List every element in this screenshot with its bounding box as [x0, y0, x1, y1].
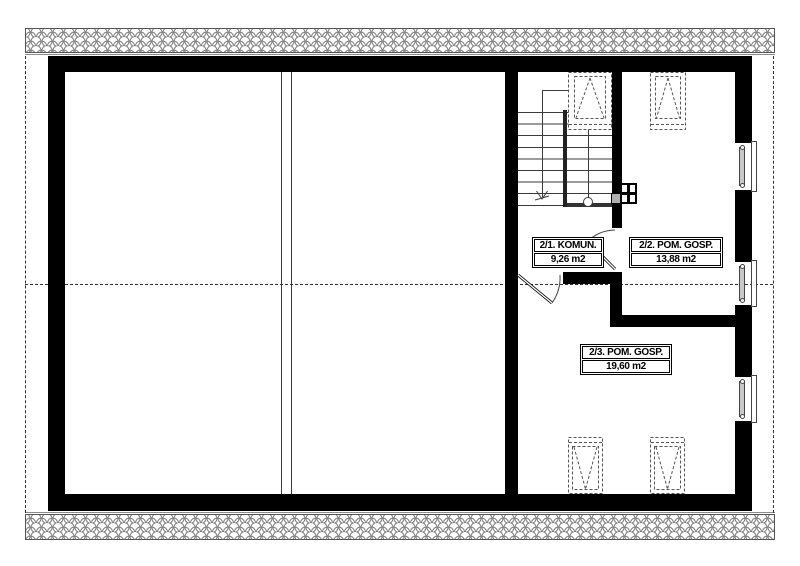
stair-walkline-up	[588, 90, 589, 198]
window-3-frame	[751, 375, 757, 423]
exterior-wall-top	[48, 56, 752, 72]
plan-vector-overlay	[0, 0, 800, 566]
chimney-vent-gray	[611, 193, 621, 204]
window-1-hinge-top	[740, 145, 745, 150]
interior-wall-room22-bottom	[610, 315, 735, 327]
window-2-frame	[751, 260, 757, 307]
window-3-hinge-bottom	[740, 414, 745, 419]
stair-stringer	[563, 110, 567, 207]
window-2-hinge-top	[740, 264, 745, 269]
roof-window-bottom-1	[569, 438, 603, 494]
floor-plan-sheet: 2/1. KOMUN. 9,26 m2 2/2. POM. GOSP. 13,8…	[0, 0, 800, 566]
room-area: 19,60 m2	[582, 360, 670, 373]
stair-landing-line	[542, 90, 613, 91]
interior-wall-main-vertical	[505, 72, 518, 494]
door-corridor-to-room23	[518, 275, 560, 303]
window-1-glazing	[739, 147, 745, 186]
exterior-wall-right-seg3	[735, 305, 752, 377]
room-area: 9,26 m2	[534, 253, 602, 266]
roof-hatch-band-top	[25, 28, 775, 53]
window-2-hinge-bottom	[740, 298, 745, 303]
stair-bottom-edge	[567, 203, 614, 207]
exterior-wall-right-seg1	[735, 56, 752, 143]
interior-wall-stair-right	[612, 72, 622, 228]
room-name: 2/1. KOMUN.	[534, 239, 602, 252]
window-1-hinge-bottom	[740, 183, 745, 188]
room-label-pom-gosp-22: 2/2. POM. GOSP. 13,88 m2	[629, 237, 723, 268]
exterior-wall-bottom	[48, 494, 752, 511]
interior-wall-corridor-bottom	[563, 272, 622, 284]
window-3-glazing	[739, 381, 745, 417]
room-divider-line-2	[291, 72, 292, 494]
roof-outline-dashed-right	[773, 56, 774, 513]
chimney-flue-4	[628, 193, 637, 204]
window-2-glazing	[739, 266, 745, 301]
window-3-hinge-top	[740, 379, 745, 384]
roof-hatch-band-bottom	[25, 514, 775, 540]
room-divider-line-1	[281, 72, 282, 494]
room-label-pom-gosp-23: 2/3. POM. GOSP. 19,60 m2	[580, 344, 672, 375]
knee-wall-dashed-line	[25, 284, 773, 285]
exterior-wall-right-seg4	[735, 421, 752, 511]
exterior-wall-right-seg2	[735, 190, 752, 262]
exterior-wall-left	[48, 56, 65, 511]
roof-window-top-2	[651, 73, 686, 130]
stair-walkline-down	[542, 90, 543, 197]
eaves-edge-line-bottom	[25, 512, 775, 513]
room-name: 2/3. POM. GOSP.	[582, 346, 670, 359]
window-1-frame	[751, 141, 757, 192]
room-area: 13,88 m2	[631, 253, 721, 266]
room-name: 2/2. POM. GOSP.	[631, 239, 721, 252]
roof-window-bottom-2	[651, 438, 685, 494]
eaves-edge-line-top	[25, 54, 775, 55]
room-label-komun: 2/1. KOMUN. 9,26 m2	[532, 237, 604, 268]
